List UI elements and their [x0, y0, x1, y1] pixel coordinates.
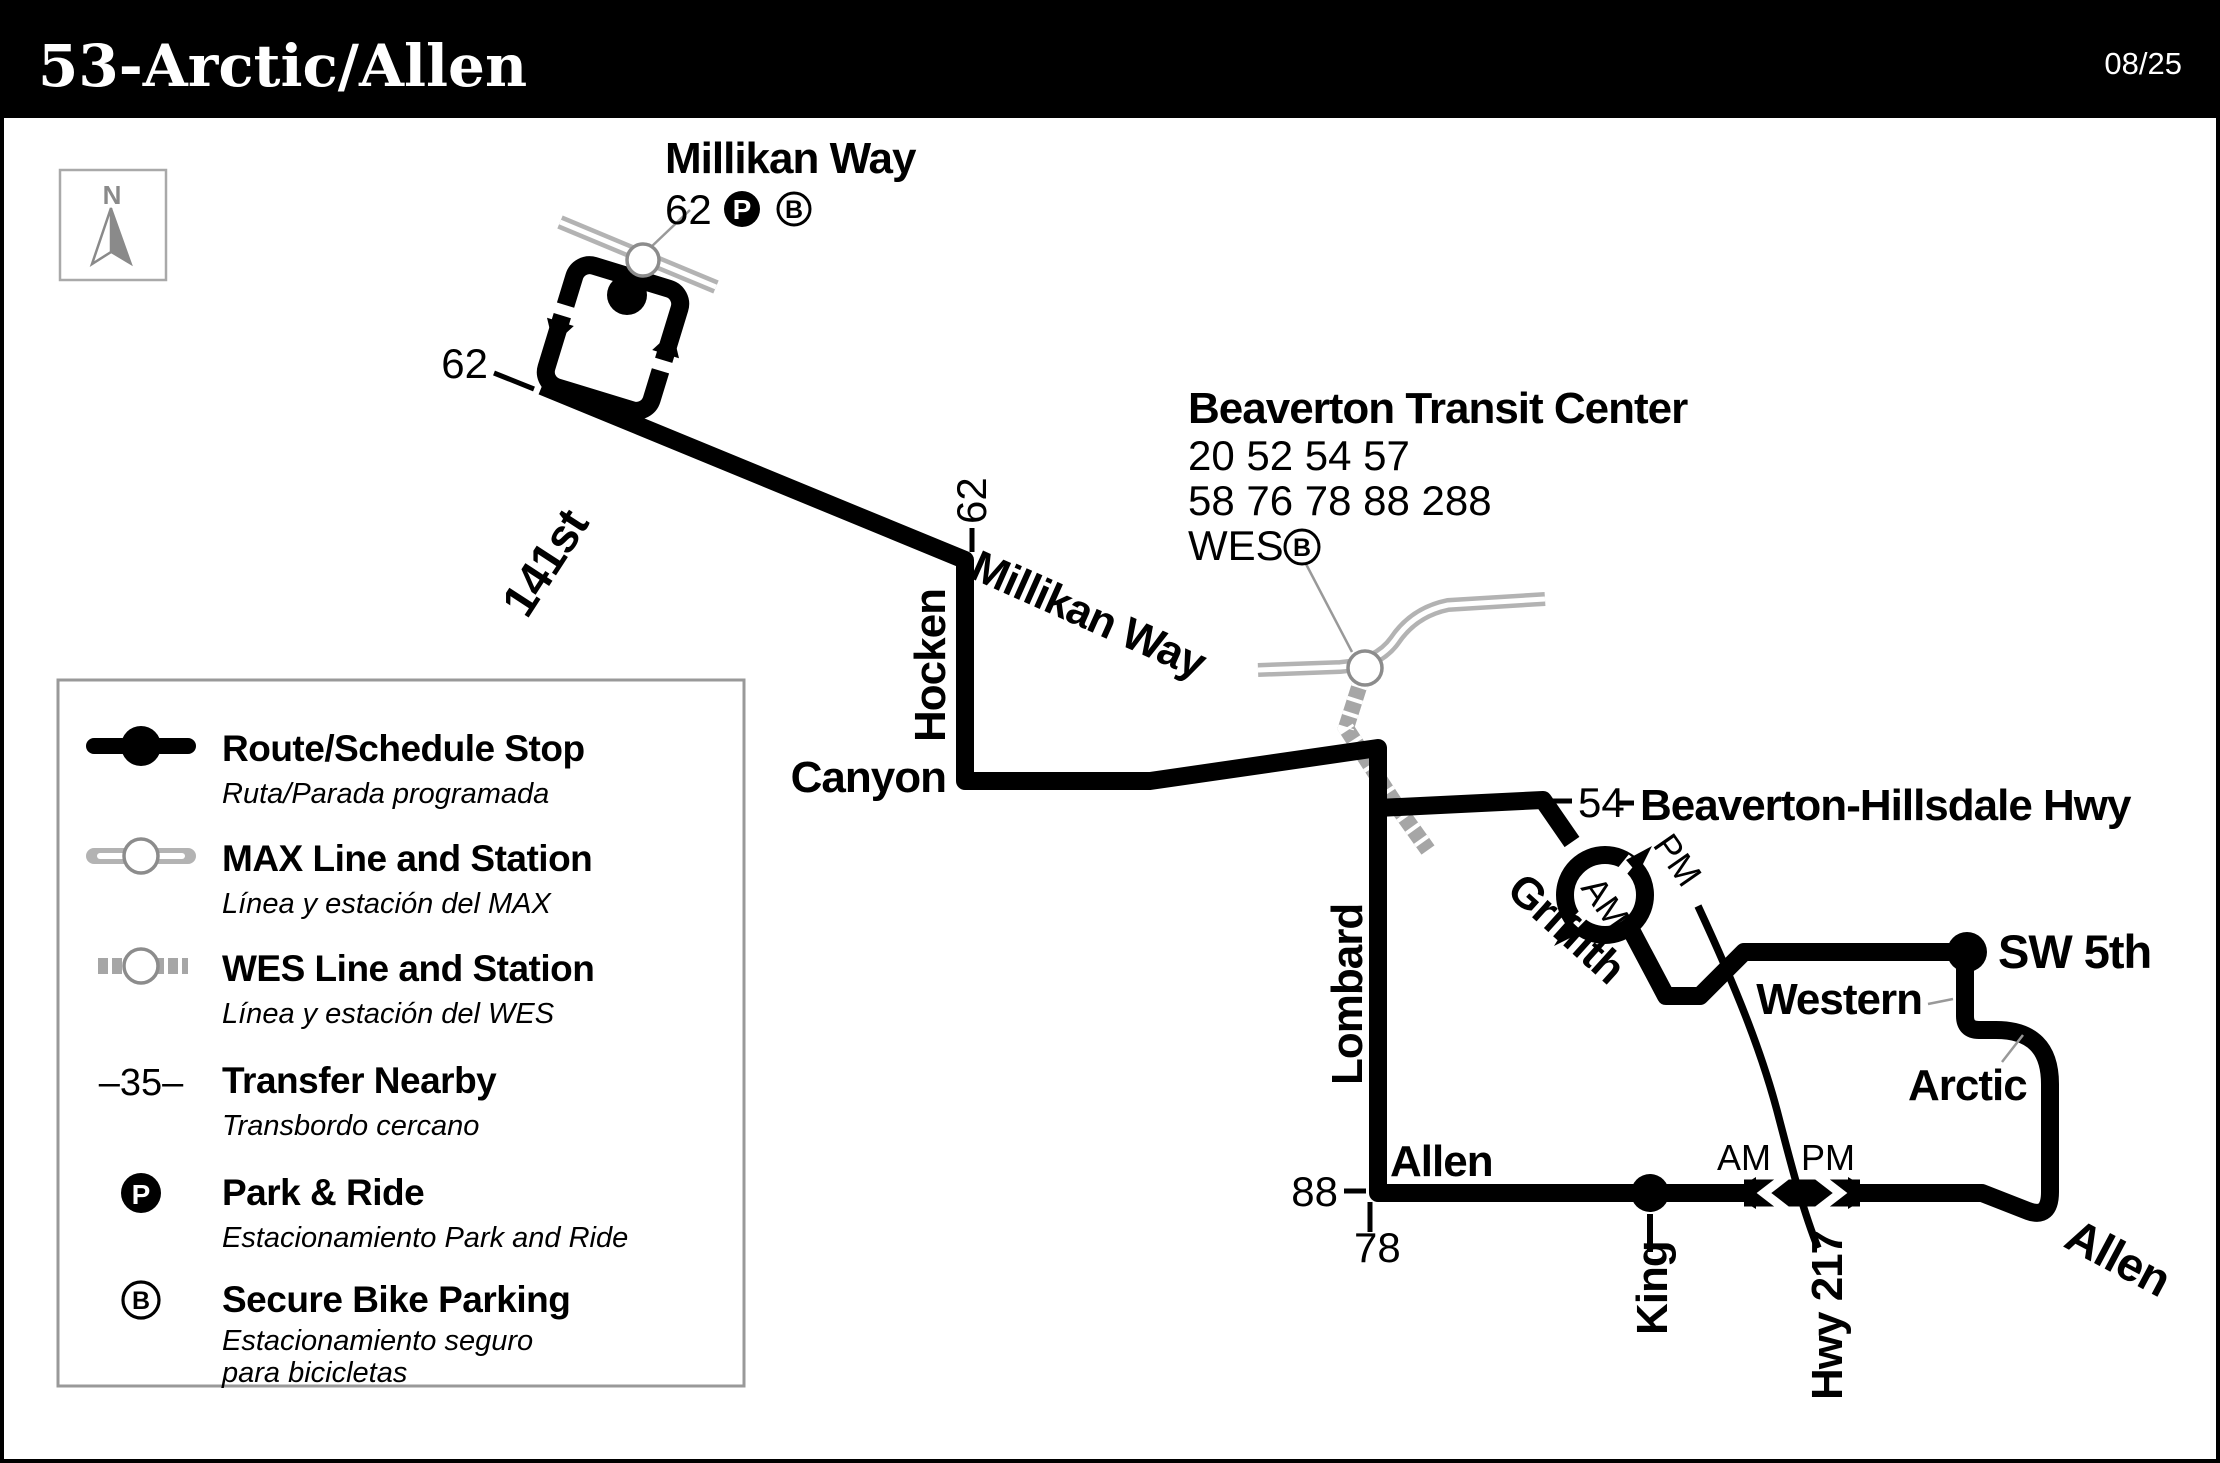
street-arctic: Arctic [1908, 1061, 2027, 1110]
legend-route-stop-label: Route/Schedule Stop [222, 728, 585, 769]
legend: Route/Schedule Stop Ruta/Parada programa… [58, 680, 744, 1389]
park-and-ride-letter: P [733, 194, 752, 225]
street-lombard: Lombard [1323, 904, 1372, 1085]
wes-station-icon [124, 949, 158, 983]
legend-transfer-sublabel: Transbordo cercano [222, 1110, 479, 1142]
legend-bike-sublabel-2: para bicicletas [221, 1357, 407, 1389]
legend-park-ride-letter: P [132, 1179, 151, 1210]
street-beaverton-hillsdale: Beaverton-Hillsdale Hwy [1640, 781, 2132, 830]
max-station-millikan-icon [627, 244, 659, 276]
direction-allen-am: AM [1717, 1137, 1771, 1178]
legend-wes-label: WES Line and Station [222, 948, 594, 989]
btc-station-icon [1348, 651, 1382, 685]
compass: N [60, 170, 166, 280]
legend-wes-sublabel: Línea y estación del WES [222, 998, 555, 1030]
legend-max-sublabel: Línea y estación del MAX [222, 888, 553, 920]
bike-parking-letter: B [785, 196, 803, 224]
transfer-nearby-icon: –35– [99, 1062, 184, 1104]
street-hocken: Hocken [906, 589, 955, 742]
legend-bike-sublabel: Estacionamiento seguro [222, 1325, 533, 1357]
street-king: King [1628, 1241, 1677, 1335]
transfer-78-allen: 78 [1354, 1224, 1401, 1271]
page-title: 53-Arctic/Allen [38, 32, 527, 100]
millikan-station-routes: 62 [665, 186, 712, 233]
legend-park-ride-label: Park & Ride [222, 1172, 424, 1213]
legend-transfer-label: Transfer Nearby [222, 1060, 497, 1101]
street-allen: Allen [1390, 1137, 1493, 1186]
compass-north-label: N [103, 180, 122, 210]
transfer-54-bh: 54 [1578, 779, 1625, 826]
btc-bike-parking-letter: B [1293, 534, 1311, 562]
legend-bike-label: Secure Bike Parking [222, 1279, 570, 1320]
header-bar: 53-Arctic/Allen 08/25 [4, 4, 2216, 118]
transfer-62-millikan: 62 [441, 340, 488, 387]
btc-routes-2: 58 76 78 88 288 [1188, 477, 1492, 524]
max-station-icon [124, 839, 158, 873]
street-western: Western [1756, 975, 1922, 1024]
btc-routes-1: 20 52 54 57 [1188, 432, 1410, 479]
schedule-stop-sw5th-icon [1947, 932, 1987, 972]
btc-name: Beaverton Transit Center [1188, 384, 1688, 433]
revision-date: 08/25 [2104, 46, 2182, 81]
schedule-stop-king-icon [1631, 1174, 1669, 1212]
route-map-page: 53-Arctic/Allen 08/25 N [0, 0, 2220, 1463]
street-canyon: Canyon [791, 753, 946, 802]
btc-routes-3: WES [1188, 522, 1284, 569]
street-hwy-217: Hwy 217 [1803, 1231, 1852, 1400]
transfer-62-hocken: 62 [948, 477, 995, 524]
legend-park-ride-sublabel: Estacionamiento Park and Ride [222, 1222, 628, 1254]
legend-route-stop-sublabel: Ruta/Parada programada [222, 778, 549, 810]
street-sw-5th: SW 5th [1998, 925, 2151, 978]
legend-bike-letter: B [132, 1287, 150, 1315]
route-map-canvas: 53-Arctic/Allen 08/25 N [0, 0, 2220, 1463]
transfer-88-allen: 88 [1291, 1168, 1338, 1215]
legend-max-label: MAX Line and Station [222, 838, 592, 879]
direction-allen-pm: PM [1801, 1137, 1855, 1178]
millikan-station-name: Millikan Way [665, 134, 917, 183]
schedule-stop-141st-icon [607, 275, 647, 315]
